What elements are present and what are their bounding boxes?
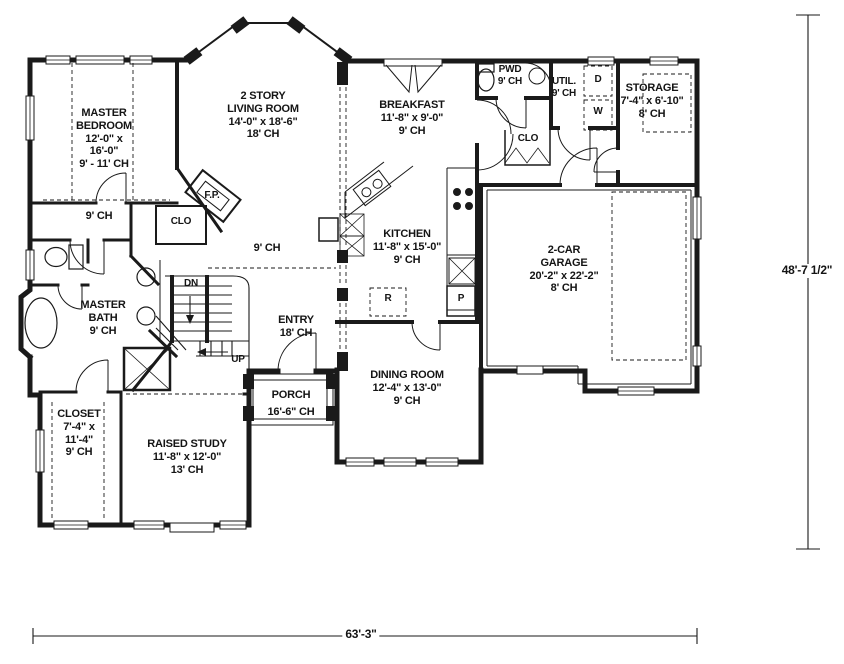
label-dining-room: DINING ROOM12'-4" x 13'-0" 9' CH [370, 369, 444, 407]
french-doors-breakfast [386, 65, 441, 92]
kitchen-counter [447, 168, 477, 310]
label-pantry: P [458, 293, 464, 305]
label-entry: ENTRY18' CH [278, 314, 314, 340]
wall-niche [319, 218, 338, 241]
label-dryer: D [594, 74, 601, 86]
label-garage: 2-CARGARAGE 20'-2" x 22'-2"8' CH [530, 244, 599, 295]
dimension-overall-width: 63'-3" [342, 628, 379, 642]
label-stairs-down: DN [184, 278, 198, 290]
stove-burner [454, 203, 461, 210]
label-fireplace: F.P. [204, 190, 219, 202]
up-arrow-head [197, 348, 206, 356]
stove-burner [466, 203, 473, 210]
garage-dashed-area [612, 192, 686, 360]
kitchen-sink [353, 170, 391, 205]
label-utility: UTIL.9' CH [552, 76, 576, 99]
label-kitchen: KITCHEN11'-8" x 15'-0" 9' CH [373, 228, 441, 266]
dimension-line-right [796, 15, 820, 549]
dimension-overall-depth: 48'-7 1/2" [779, 264, 836, 278]
label-porch: PORCH16'-6" CH [268, 387, 315, 420]
stove-burner [466, 189, 473, 196]
label-master-bath: MASTERBATH 9' CH [80, 299, 125, 337]
label-refrigerator: R [384, 293, 391, 305]
label-stairs-up: UP [231, 354, 245, 366]
label-master-bedroom: MASTERBEDROOM 12'-0" x16'-0" 9' - 11' CH [76, 107, 132, 171]
stove-burner [454, 189, 461, 196]
floor-plan-page: MASTERBEDROOM 12'-0" x16'-0" 9' - 11' CH… [0, 0, 844, 664]
bay-window-living-room [188, 23, 348, 60]
vanity-sink [137, 307, 155, 325]
toilet [45, 248, 67, 267]
label-hall-ceiling-left: 9' CH [86, 210, 113, 223]
label-closet-hall: CLO [518, 133, 539, 145]
label-storage: STORAGE7'-4" x 6'-10" 8' CH [620, 82, 683, 120]
label-living-room: 2 STORYLIVING ROOM 14'-0" x 18'-6"18' CH [227, 90, 299, 141]
label-closet: CLOSET7'-4" x 11'-4"9' CH [57, 408, 100, 459]
label-breakfast: BREAKFAST11'-8" x 9'-0" 9' CH [379, 99, 444, 137]
label-powder: PWD9' CH [498, 64, 522, 87]
bathtub [25, 298, 57, 348]
down-arrow-head [186, 315, 194, 324]
label-closet-fireplace: CLO [171, 216, 192, 228]
label-washer: W [593, 106, 602, 118]
label-hall-ceiling-center: 9' CH [254, 242, 281, 255]
label-raised-study: RAISED STUDY11'-8" x 12'-0" 13' CH [147, 438, 227, 476]
